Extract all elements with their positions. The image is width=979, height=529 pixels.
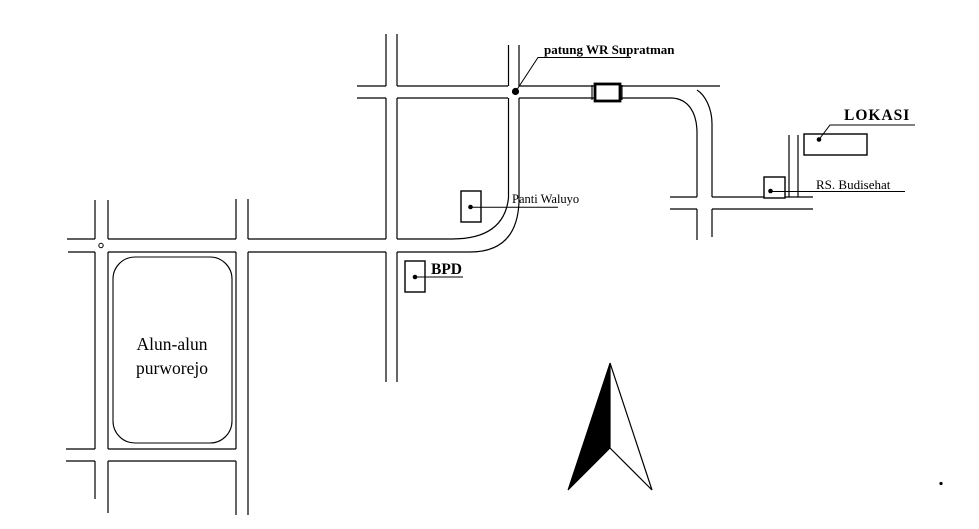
square-south-road xyxy=(66,449,236,461)
lokasi-building xyxy=(804,134,867,155)
north-arrow-icon xyxy=(568,363,652,490)
alun-alun-label-line2: purworejo xyxy=(136,358,208,378)
bridge-symbol xyxy=(595,84,620,101)
rs-budisehat-building xyxy=(764,177,785,198)
right-vertical-road xyxy=(697,124,712,240)
panti-waluyo-site: Panti Waluyo xyxy=(461,191,579,222)
panti-waluyo-label: Panti Waluyo xyxy=(512,192,579,206)
location-map: Alun-alun purworejo patung WR Supratman … xyxy=(0,0,979,529)
statue-street xyxy=(509,45,520,202)
rs-budisehat-label: RS. Budisehat xyxy=(816,177,891,192)
crossroads-circle xyxy=(99,243,103,247)
lokasi-site: LOKASI xyxy=(804,107,915,155)
bpd-site: BPD xyxy=(405,261,463,292)
square-east-road xyxy=(236,199,248,515)
square-north-road-bottom-line xyxy=(68,202,519,252)
alun-alun-label-line1: Alun-alun xyxy=(137,334,208,354)
alun-alun-square: Alun-alun purworejo xyxy=(113,257,232,443)
plot-speck xyxy=(939,482,942,485)
map-drawing: Alun-alun purworejo patung WR Supratman … xyxy=(0,0,979,529)
bpd-label: BPD xyxy=(431,261,462,278)
square-north-road-top-line xyxy=(67,198,509,239)
statue-label: patung WR Supratman xyxy=(544,42,675,57)
lokasi-label: LOKASI xyxy=(844,107,910,124)
main-road-bend-outer xyxy=(672,98,697,133)
right-horizontal-road xyxy=(670,197,813,209)
north-arrow-left-half xyxy=(568,363,610,490)
rs-budisehat-site: RS. Budisehat xyxy=(764,177,905,198)
lokasi-street xyxy=(789,135,798,197)
north-arrow-right-half xyxy=(610,363,652,490)
bridge xyxy=(592,84,622,101)
main-road-bend-inner xyxy=(697,90,712,124)
bpd-street xyxy=(386,34,397,382)
